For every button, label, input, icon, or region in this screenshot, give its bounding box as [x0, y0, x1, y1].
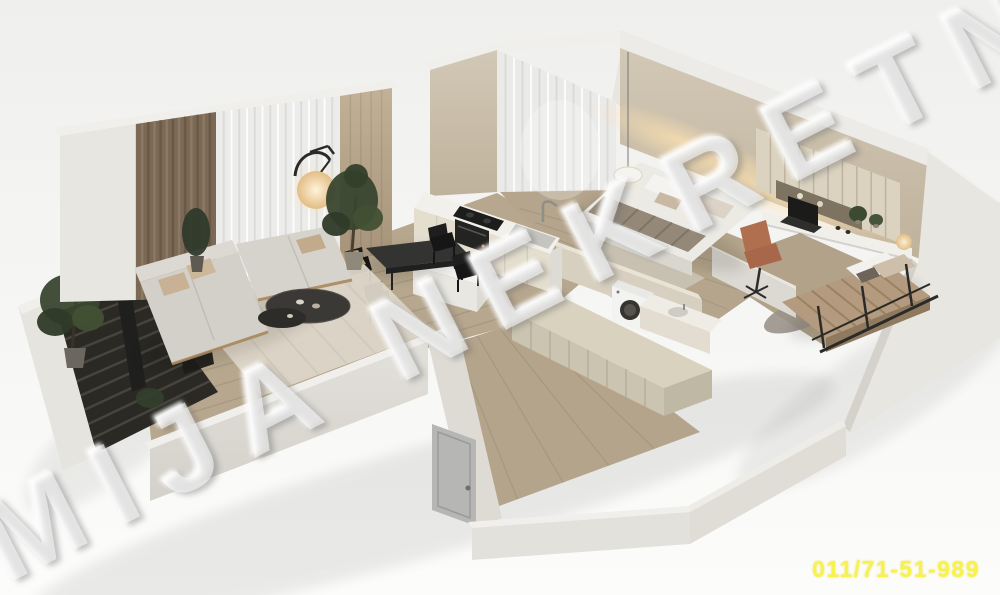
- scene-canvas: [0, 0, 1000, 595]
- entry-door: [432, 424, 476, 526]
- apartment-3d-floorplan: PREMIJA NEKRETNINE 011/71-51-989: [0, 0, 1000, 595]
- phone-number: 011/71-51-989: [812, 556, 980, 583]
